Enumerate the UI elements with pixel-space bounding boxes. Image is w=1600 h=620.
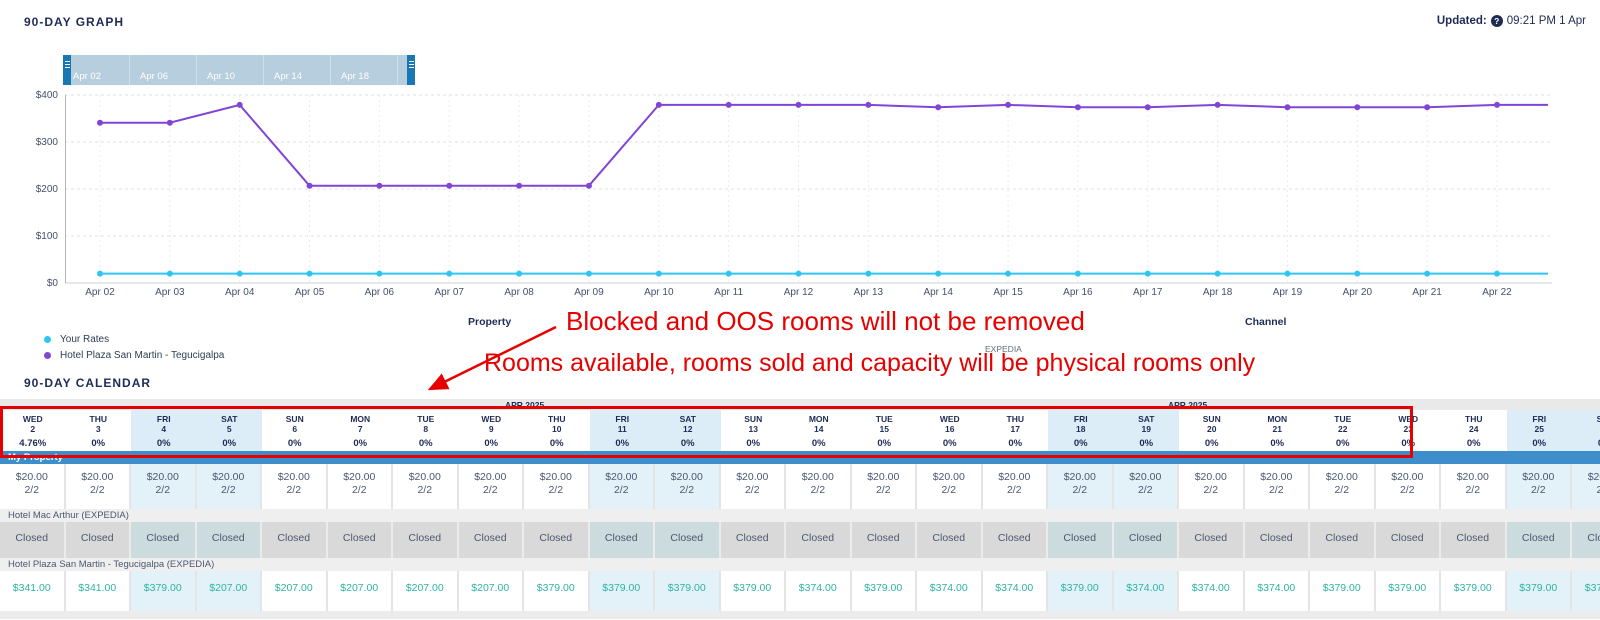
channel-filter-label: Channel bbox=[1245, 316, 1286, 328]
day-name: SUN bbox=[1203, 414, 1221, 424]
mac-arthur-cell[interactable]: Closed bbox=[1179, 522, 1245, 558]
my-property-rate: $20.00 bbox=[1114, 471, 1178, 484]
plaza-rate-cell[interactable]: $207.00 bbox=[393, 571, 459, 611]
day-header-cell[interactable]: WED24.76% bbox=[0, 410, 66, 451]
my-property-cell[interactable]: $20.002/2 bbox=[721, 464, 787, 509]
day-number: 9 bbox=[489, 424, 494, 434]
my-property-rate: $20.00 bbox=[721, 471, 785, 484]
mac-arthur-cell[interactable]: Closed bbox=[197, 522, 263, 558]
day-name: SAT bbox=[221, 414, 237, 424]
my-property-cell[interactable]: $20.002/2 bbox=[590, 464, 656, 509]
day-occupancy: 0% bbox=[550, 438, 564, 449]
my-property-cell[interactable]: $20.002/2 bbox=[1048, 464, 1114, 509]
month-band: APR 2025 APR 2025 bbox=[0, 399, 1600, 410]
my-property-rate: $20.00 bbox=[459, 471, 523, 484]
rate-shopper-page: 90-DAY GRAPH Updated: ? 09:21 PM 1 Apr A… bbox=[0, 0, 1600, 620]
day-header-cell[interactable]: THU30% bbox=[66, 410, 132, 451]
my-property-inventory: 2/2 bbox=[197, 484, 261, 497]
day-name: SUN bbox=[286, 414, 304, 424]
day-occupancy: 0% bbox=[419, 438, 433, 449]
day-name: TUE bbox=[1334, 414, 1351, 424]
svg-text:Apr 19: Apr 19 bbox=[1273, 287, 1303, 298]
plaza-rate-cell[interactable]: $379.00 bbox=[1048, 571, 1114, 611]
my-property-rate: $20.00 bbox=[1179, 471, 1243, 484]
my-property-rate: $20.00 bbox=[1376, 471, 1440, 484]
day-header-cell[interactable]: SUN130% bbox=[721, 410, 787, 451]
my-property-rate: $20.00 bbox=[1048, 471, 1112, 484]
mac-arthur-cell[interactable]: Closed bbox=[983, 522, 1049, 558]
svg-text:Apr 05: Apr 05 bbox=[295, 287, 325, 298]
plaza-rate-cell[interactable]: $379.00 bbox=[1441, 571, 1507, 611]
day-occupancy: 0% bbox=[1401, 438, 1415, 449]
day-occupancy: 0% bbox=[1336, 438, 1350, 449]
my-property-inventory: 2/2 bbox=[1572, 484, 1600, 497]
day-name: MON bbox=[1267, 414, 1287, 424]
slider-segment-line bbox=[196, 55, 197, 85]
svg-text:Apr 07: Apr 07 bbox=[435, 287, 465, 298]
annotation-rooms-available: Rooms available, rooms sold and capacity… bbox=[484, 349, 1255, 378]
plaza-rate-cell[interactable]: $374.00 bbox=[1245, 571, 1311, 611]
day-name: FRI bbox=[1074, 414, 1088, 424]
day-name: THU bbox=[1007, 414, 1024, 424]
slider-handle-left[interactable] bbox=[63, 55, 71, 85]
plaza-band-label: Hotel Plaza San Martin - Tegucigalpa (EX… bbox=[8, 559, 214, 570]
svg-text:Apr 10: Apr 10 bbox=[644, 287, 674, 298]
graph-section-title: 90-DAY GRAPH bbox=[24, 15, 124, 29]
day-header-cell[interactable]: MON210% bbox=[1245, 410, 1311, 451]
my-property-cell[interactable]: $20.002/2 bbox=[1441, 464, 1507, 509]
my-property-inventory: 2/2 bbox=[1310, 484, 1374, 497]
plaza-rate-cell[interactable]: $341.00 bbox=[66, 571, 132, 611]
day-occupancy: 0% bbox=[1467, 438, 1481, 449]
my-property-rate: $20.00 bbox=[983, 471, 1047, 484]
day-number: 16 bbox=[945, 424, 954, 434]
date-range-slider[interactable]: Apr 02Apr 06Apr 10Apr 14Apr 18Ap bbox=[63, 55, 415, 85]
my-property-rate: $20.00 bbox=[786, 471, 850, 484]
day-occupancy: 0% bbox=[1139, 438, 1153, 449]
plaza-rate-cell[interactable]: $379.00 bbox=[1376, 571, 1442, 611]
mac-arthur-cell[interactable]: Closed bbox=[1245, 522, 1311, 558]
my-property-cell[interactable]: $20.002/2 bbox=[983, 464, 1049, 509]
my-property-rate: $20.00 bbox=[328, 471, 392, 484]
plaza-rate-cell[interactable]: $207.00 bbox=[197, 571, 263, 611]
svg-text:Apr 02: Apr 02 bbox=[85, 287, 115, 298]
plaza-rate-cell[interactable]: $379.00 bbox=[590, 571, 656, 611]
my-property-rate: $20.00 bbox=[0, 471, 64, 484]
svg-text:$400: $400 bbox=[36, 90, 59, 101]
updated-stamp: Updated: ? 09:21 PM 1 Apr bbox=[1437, 15, 1586, 27]
legend-label: Your Rates bbox=[60, 334, 109, 345]
my-property-rate: $20.00 bbox=[131, 471, 195, 484]
my-property-inventory: 2/2 bbox=[852, 484, 916, 497]
svg-text:Apr 18: Apr 18 bbox=[1203, 287, 1233, 298]
mac-arthur-cell[interactable]: Closed bbox=[1507, 522, 1573, 558]
day-name: MON bbox=[350, 414, 370, 424]
day-name: FRI bbox=[1532, 414, 1546, 424]
day-number: 20 bbox=[1207, 424, 1216, 434]
svg-text:Apr 15: Apr 15 bbox=[993, 287, 1023, 298]
my-property-cell[interactable]: $20.002/2 bbox=[524, 464, 590, 509]
day-occupancy: 0% bbox=[746, 438, 760, 449]
slider-segment-line bbox=[129, 55, 130, 85]
slider-segment-line bbox=[397, 55, 398, 85]
mac-arthur-row: ClosedClosedClosedClosedClosedClosedClos… bbox=[0, 522, 1600, 558]
mac-arthur-cell[interactable]: Closed bbox=[524, 522, 590, 558]
svg-text:Apr 06: Apr 06 bbox=[365, 287, 395, 298]
day-number: 4 bbox=[161, 424, 166, 434]
day-header-cell[interactable]: THU170% bbox=[983, 410, 1049, 451]
slider-segment-line bbox=[330, 55, 331, 85]
mac-arthur-cell[interactable]: Closed bbox=[1114, 522, 1180, 558]
legend-dot-icon bbox=[44, 352, 51, 359]
my-property-row: $20.002/2$20.002/2$20.002/2$20.002/2$20.… bbox=[0, 464, 1600, 509]
my-property-cell[interactable]: $20.002/2 bbox=[131, 464, 197, 509]
my-property-rate: $20.00 bbox=[590, 471, 654, 484]
updated-label: Updated: bbox=[1437, 15, 1487, 27]
svg-text:Apr 08: Apr 08 bbox=[504, 287, 534, 298]
my-property-inventory: 2/2 bbox=[328, 484, 392, 497]
plaza-rate-cell[interactable]: $374.00 bbox=[1179, 571, 1245, 611]
day-occupancy: 0% bbox=[91, 438, 105, 449]
my-property-inventory: 2/2 bbox=[721, 484, 785, 497]
chart-legend: Your RatesHotel Plaza San Martin - Teguc… bbox=[44, 331, 224, 363]
my-property-rate: $20.00 bbox=[262, 471, 326, 484]
my-property-inventory: 2/2 bbox=[1245, 484, 1309, 497]
my-property-cell[interactable]: $20.002/2 bbox=[852, 464, 918, 509]
day-number: 12 bbox=[683, 424, 692, 434]
mac-arthur-cell[interactable]: Closed bbox=[1310, 522, 1376, 558]
my-property-cell[interactable]: $20.002/2 bbox=[459, 464, 525, 509]
day-number: 18 bbox=[1076, 424, 1085, 434]
mac-arthur-band: Hotel Mac Arthur (EXPEDIA) bbox=[0, 509, 1600, 522]
day-occupancy: 0% bbox=[812, 438, 826, 449]
day-header-cell[interactable]: FRI40% bbox=[131, 410, 197, 451]
svg-text:Apr 22: Apr 22 bbox=[1482, 287, 1512, 298]
mac-arthur-cell[interactable]: Closed bbox=[131, 522, 197, 558]
day-occupancy: 0% bbox=[1205, 438, 1219, 449]
day-occupancy: 0% bbox=[157, 438, 171, 449]
day-number: 5 bbox=[227, 424, 232, 434]
mac-arthur-cell[interactable]: Closed bbox=[393, 522, 459, 558]
day-occupancy: 0% bbox=[877, 438, 891, 449]
my-property-band: My Property bbox=[0, 451, 1600, 464]
day-name: WED bbox=[481, 414, 501, 424]
day-name: TUE bbox=[876, 414, 893, 424]
day-header-cell[interactable]: TUE220% bbox=[1310, 410, 1376, 451]
day-number: 14 bbox=[814, 424, 823, 434]
day-number: 6 bbox=[292, 424, 297, 434]
day-occupancy: 0% bbox=[484, 438, 498, 449]
day-header-cell[interactable]: SUN60% bbox=[262, 410, 328, 451]
my-property-rate: $20.00 bbox=[917, 471, 981, 484]
day-name: THU bbox=[1465, 414, 1482, 424]
day-number: 3 bbox=[96, 424, 101, 434]
calendar-section-title: 90-DAY CALENDAR bbox=[24, 376, 151, 390]
mac-arthur-cell[interactable]: Closed bbox=[1572, 522, 1600, 558]
day-occupancy: 0% bbox=[615, 438, 629, 449]
day-header-cell[interactable]: WED230% bbox=[1376, 410, 1442, 451]
plaza-row: $341.00$341.00$379.00$207.00$207.00$207.… bbox=[0, 571, 1600, 611]
day-header-cell[interactable]: MON70% bbox=[328, 410, 394, 451]
updated-time: 09:21 PM 1 Apr bbox=[1507, 15, 1586, 27]
my-property-rate: $20.00 bbox=[655, 471, 719, 484]
mac-arthur-cell[interactable]: Closed bbox=[852, 522, 918, 558]
day-occupancy: 0% bbox=[943, 438, 957, 449]
plaza-rate-cell[interactable]: $379.00 bbox=[655, 571, 721, 611]
plaza-rate-cell[interactable]: $379.00 bbox=[524, 571, 590, 611]
plaza-rate-cell[interactable]: $207.00 bbox=[262, 571, 328, 611]
month-label: APR 2025 bbox=[1168, 400, 1207, 410]
mac-arthur-cell[interactable]: Closed bbox=[721, 522, 787, 558]
day-header-cell[interactable]: FRI250% bbox=[1507, 410, 1573, 451]
mac-arthur-cell[interactable]: Closed bbox=[459, 522, 525, 558]
legend-item[interactable]: Your Rates bbox=[44, 331, 224, 347]
slider-date-label: Apr 14 bbox=[274, 71, 302, 82]
slider-date-label: Apr 06 bbox=[140, 71, 168, 82]
svg-text:Apr 20: Apr 20 bbox=[1343, 287, 1373, 298]
my-property-inventory: 2/2 bbox=[1507, 484, 1571, 497]
day-header-cell[interactable]: FRI110% bbox=[590, 410, 656, 451]
plaza-rate-cell[interactable]: $207.00 bbox=[459, 571, 525, 611]
my-property-cell[interactable]: $20.002/2 bbox=[1114, 464, 1180, 509]
my-property-rate: $20.00 bbox=[852, 471, 916, 484]
day-number: 24 bbox=[1469, 424, 1478, 434]
svg-text:Apr 12: Apr 12 bbox=[784, 287, 814, 298]
day-header-cell[interactable]: MON140% bbox=[786, 410, 852, 451]
plaza-rate-cell[interactable]: $379.00 bbox=[1507, 571, 1573, 611]
my-property-inventory: 2/2 bbox=[1441, 484, 1505, 497]
mac-arthur-cell[interactable]: Closed bbox=[328, 522, 394, 558]
my-property-rate: $20.00 bbox=[1245, 471, 1309, 484]
my-property-inventory: 2/2 bbox=[983, 484, 1047, 497]
day-header-cell[interactable]: THU100% bbox=[524, 410, 590, 451]
day-name: MON bbox=[809, 414, 829, 424]
day-occupancy: 0% bbox=[681, 438, 695, 449]
my-property-rate: $20.00 bbox=[197, 471, 261, 484]
plaza-band: Hotel Plaza San Martin - Tegucigalpa (EX… bbox=[0, 558, 1600, 571]
day-occupancy: 0% bbox=[353, 438, 367, 449]
day-name: SUN bbox=[744, 414, 762, 424]
annotation-blocked-oos: Blocked and OOS rooms will not be remove… bbox=[566, 306, 1085, 337]
svg-text:Apr 11: Apr 11 bbox=[714, 287, 743, 298]
my-property-rate: $20.00 bbox=[1441, 471, 1505, 484]
my-property-inventory: 2/2 bbox=[262, 484, 326, 497]
day-occupancy: 0% bbox=[1008, 438, 1022, 449]
plaza-rate-cell[interactable]: $374.00 bbox=[786, 571, 852, 611]
day-occupancy: 0% bbox=[1074, 438, 1088, 449]
mac-arthur-cell[interactable]: Closed bbox=[786, 522, 852, 558]
my-property-band-label: My Property bbox=[8, 452, 63, 463]
my-property-cell[interactable]: $20.002/2 bbox=[197, 464, 263, 509]
slider-segment-line bbox=[263, 55, 264, 85]
day-number: 7 bbox=[358, 424, 363, 434]
my-property-inventory: 2/2 bbox=[1179, 484, 1243, 497]
day-header-cell[interactable]: WED90% bbox=[459, 410, 525, 451]
slider-date-label: Apr 02 bbox=[73, 71, 101, 82]
my-property-cell[interactable]: $20.002/2 bbox=[1376, 464, 1442, 509]
day-occupancy: 0% bbox=[1532, 438, 1546, 449]
mac-arthur-cell[interactable]: Closed bbox=[1441, 522, 1507, 558]
day-header-cell[interactable]: SAT50% bbox=[197, 410, 263, 451]
my-property-inventory: 2/2 bbox=[393, 484, 457, 497]
my-property-inventory: 2/2 bbox=[655, 484, 719, 497]
day-number: 13 bbox=[749, 424, 758, 434]
my-property-inventory: 2/2 bbox=[524, 484, 588, 497]
mac-arthur-cell[interactable]: Closed bbox=[66, 522, 132, 558]
legend-item[interactable]: Hotel Plaza San Martin - Tegucigalpa bbox=[44, 347, 224, 363]
my-property-inventory: 2/2 bbox=[1376, 484, 1440, 497]
my-property-rate: $20.00 bbox=[1507, 471, 1571, 484]
month-label: APR 2025 bbox=[505, 400, 544, 410]
legend-dot-icon bbox=[44, 336, 51, 343]
mac-arthur-cell[interactable]: Closed bbox=[1376, 522, 1442, 558]
day-name: FRI bbox=[157, 414, 171, 424]
my-property-inventory: 2/2 bbox=[917, 484, 981, 497]
slider-date-label: Apr 18 bbox=[341, 71, 369, 82]
mac-arthur-cell[interactable]: Closed bbox=[917, 522, 983, 558]
grip-icon bbox=[409, 61, 414, 68]
day-occupancy: 0% bbox=[288, 438, 302, 449]
day-number: 22 bbox=[1338, 424, 1347, 434]
day-number: 10 bbox=[552, 424, 561, 434]
mac-arthur-cell[interactable]: Closed bbox=[262, 522, 328, 558]
my-property-inventory: 2/2 bbox=[786, 484, 850, 497]
mac-arthur-cell[interactable]: Closed bbox=[590, 522, 656, 558]
partial-row-band bbox=[0, 611, 1600, 619]
plaza-rate-cell[interactable]: $374.00 bbox=[1114, 571, 1180, 611]
my-property-cell[interactable]: $20.002/2 bbox=[1507, 464, 1573, 509]
svg-text:Apr 16: Apr 16 bbox=[1063, 287, 1093, 298]
day-name: FRI bbox=[615, 414, 629, 424]
day-header-cell[interactable]: WED160% bbox=[917, 410, 983, 451]
svg-text:$300: $300 bbox=[36, 137, 59, 148]
my-property-cell[interactable]: $20.002/2 bbox=[1245, 464, 1311, 509]
mac-arthur-band-label: Hotel Mac Arthur (EXPEDIA) bbox=[8, 510, 129, 521]
day-number: 8 bbox=[423, 424, 428, 434]
day-occupancy: 0% bbox=[1270, 438, 1284, 449]
my-property-inventory: 2/2 bbox=[590, 484, 654, 497]
day-name: THU bbox=[548, 414, 565, 424]
svg-text:Apr 21: Apr 21 bbox=[1412, 287, 1442, 298]
plaza-rate-cell[interactable]: $341.00 bbox=[0, 571, 66, 611]
day-occupancy: 4.76% bbox=[19, 438, 46, 449]
my-property-cell[interactable]: $20.002/2 bbox=[328, 464, 394, 509]
svg-text:Apr 09: Apr 09 bbox=[574, 287, 604, 298]
plaza-rate-cell[interactable]: $379.00 bbox=[1572, 571, 1600, 611]
my-property-inventory: 2/2 bbox=[1114, 484, 1178, 497]
day-number: 17 bbox=[1011, 424, 1020, 434]
svg-text:$200: $200 bbox=[36, 184, 59, 195]
legend-label: Hotel Plaza San Martin - Tegucigalpa bbox=[60, 350, 224, 361]
slider-handle-right[interactable] bbox=[407, 55, 415, 85]
my-property-cell[interactable]: $20.002/2 bbox=[655, 464, 721, 509]
calendar: APR 2025 APR 2025 WED24.76%THU30%FRI40%S… bbox=[0, 399, 1600, 620]
day-name: WED bbox=[23, 414, 43, 424]
day-header-cell[interactable]: SAT120% bbox=[655, 410, 721, 451]
my-property-inventory: 2/2 bbox=[66, 484, 130, 497]
day-number: 15 bbox=[880, 424, 889, 434]
my-property-cell[interactable]: $20.002/2 bbox=[262, 464, 328, 509]
svg-text:Apr 04: Apr 04 bbox=[225, 287, 255, 298]
svg-text:Apr 14: Apr 14 bbox=[923, 287, 953, 298]
my-property-rate: $20.00 bbox=[1572, 471, 1600, 484]
day-number: 25 bbox=[1535, 424, 1544, 434]
my-property-rate: $20.00 bbox=[1310, 471, 1374, 484]
rates-line-chart: $0$100$200$300$400Apr 02Apr 03Apr 04Apr … bbox=[0, 88, 1600, 300]
svg-text:$0: $0 bbox=[47, 278, 59, 289]
plaza-rate-cell[interactable]: $379.00 bbox=[1310, 571, 1376, 611]
svg-text:Apr 13: Apr 13 bbox=[854, 287, 884, 298]
day-header-cell[interactable]: SUN200% bbox=[1179, 410, 1245, 451]
my-property-cell[interactable]: $20.002/2 bbox=[1179, 464, 1245, 509]
mac-arthur-cell[interactable]: Closed bbox=[655, 522, 721, 558]
my-property-inventory: 2/2 bbox=[459, 484, 523, 497]
plaza-rate-cell[interactable]: $374.00 bbox=[917, 571, 983, 611]
my-property-cell[interactable]: $20.002/2 bbox=[786, 464, 852, 509]
my-property-cell[interactable]: $20.002/2 bbox=[1310, 464, 1376, 509]
my-property-cell[interactable]: $20.002/2 bbox=[393, 464, 459, 509]
my-property-rate: $20.00 bbox=[524, 471, 588, 484]
plaza-rate-cell[interactable]: $379.00 bbox=[131, 571, 197, 611]
day-name: TUE bbox=[417, 414, 434, 424]
my-property-cell[interactable]: $20.002/2 bbox=[1572, 464, 1600, 509]
day-number: 11 bbox=[618, 424, 627, 434]
day-occupancy: 0% bbox=[222, 438, 236, 449]
my-property-inventory: 2/2 bbox=[131, 484, 195, 497]
svg-text:$100: $100 bbox=[36, 231, 59, 242]
mac-arthur-cell[interactable]: Closed bbox=[0, 522, 66, 558]
day-name: SAT bbox=[1138, 414, 1154, 424]
question-mark-circle-icon[interactable]: ? bbox=[1491, 15, 1503, 27]
day-name: THU bbox=[90, 414, 107, 424]
my-property-rate: $20.00 bbox=[393, 471, 457, 484]
svg-text:Apr 17: Apr 17 bbox=[1133, 287, 1163, 298]
my-property-cell[interactable]: $20.002/2 bbox=[917, 464, 983, 509]
my-property-cell[interactable]: $20.002/2 bbox=[0, 464, 66, 509]
day-name: WED bbox=[940, 414, 960, 424]
my-property-cell[interactable]: $20.002/2 bbox=[66, 464, 132, 509]
day-number: 19 bbox=[1142, 424, 1151, 434]
day-number: 21 bbox=[1273, 424, 1282, 434]
property-filter-label: Property bbox=[468, 316, 511, 328]
calendar-day-header: WED24.76%THU30%FRI40%SAT50%SUN60%MON70%T… bbox=[0, 410, 1600, 451]
day-number: 23 bbox=[1404, 424, 1413, 434]
plaza-rate-cell[interactable]: $379.00 bbox=[852, 571, 918, 611]
day-name: SAT bbox=[1597, 414, 1600, 424]
plaza-rate-cell[interactable]: $207.00 bbox=[328, 571, 394, 611]
day-header-cell[interactable]: TUE80% bbox=[393, 410, 459, 451]
plaza-rate-cell[interactable]: $374.00 bbox=[983, 571, 1049, 611]
day-name: SAT bbox=[680, 414, 696, 424]
day-header-cell[interactable]: FRI180% bbox=[1048, 410, 1114, 451]
day-number: 2 bbox=[30, 424, 35, 434]
my-property-inventory: 2/2 bbox=[0, 484, 64, 497]
day-header-cell[interactable]: SAT260% bbox=[1572, 410, 1600, 451]
plaza-rate-cell[interactable]: $379.00 bbox=[721, 571, 787, 611]
day-name: WED bbox=[1398, 414, 1418, 424]
svg-text:Apr 03: Apr 03 bbox=[155, 287, 185, 298]
grip-icon bbox=[65, 61, 70, 68]
day-header-cell[interactable]: THU240% bbox=[1441, 410, 1507, 451]
mac-arthur-cell[interactable]: Closed bbox=[1048, 522, 1114, 558]
day-header-cell[interactable]: SAT190% bbox=[1114, 410, 1180, 451]
slider-date-label: Apr 10 bbox=[207, 71, 235, 82]
my-property-rate: $20.00 bbox=[66, 471, 130, 484]
day-header-cell[interactable]: TUE150% bbox=[852, 410, 918, 451]
my-property-inventory: 2/2 bbox=[1048, 484, 1112, 497]
